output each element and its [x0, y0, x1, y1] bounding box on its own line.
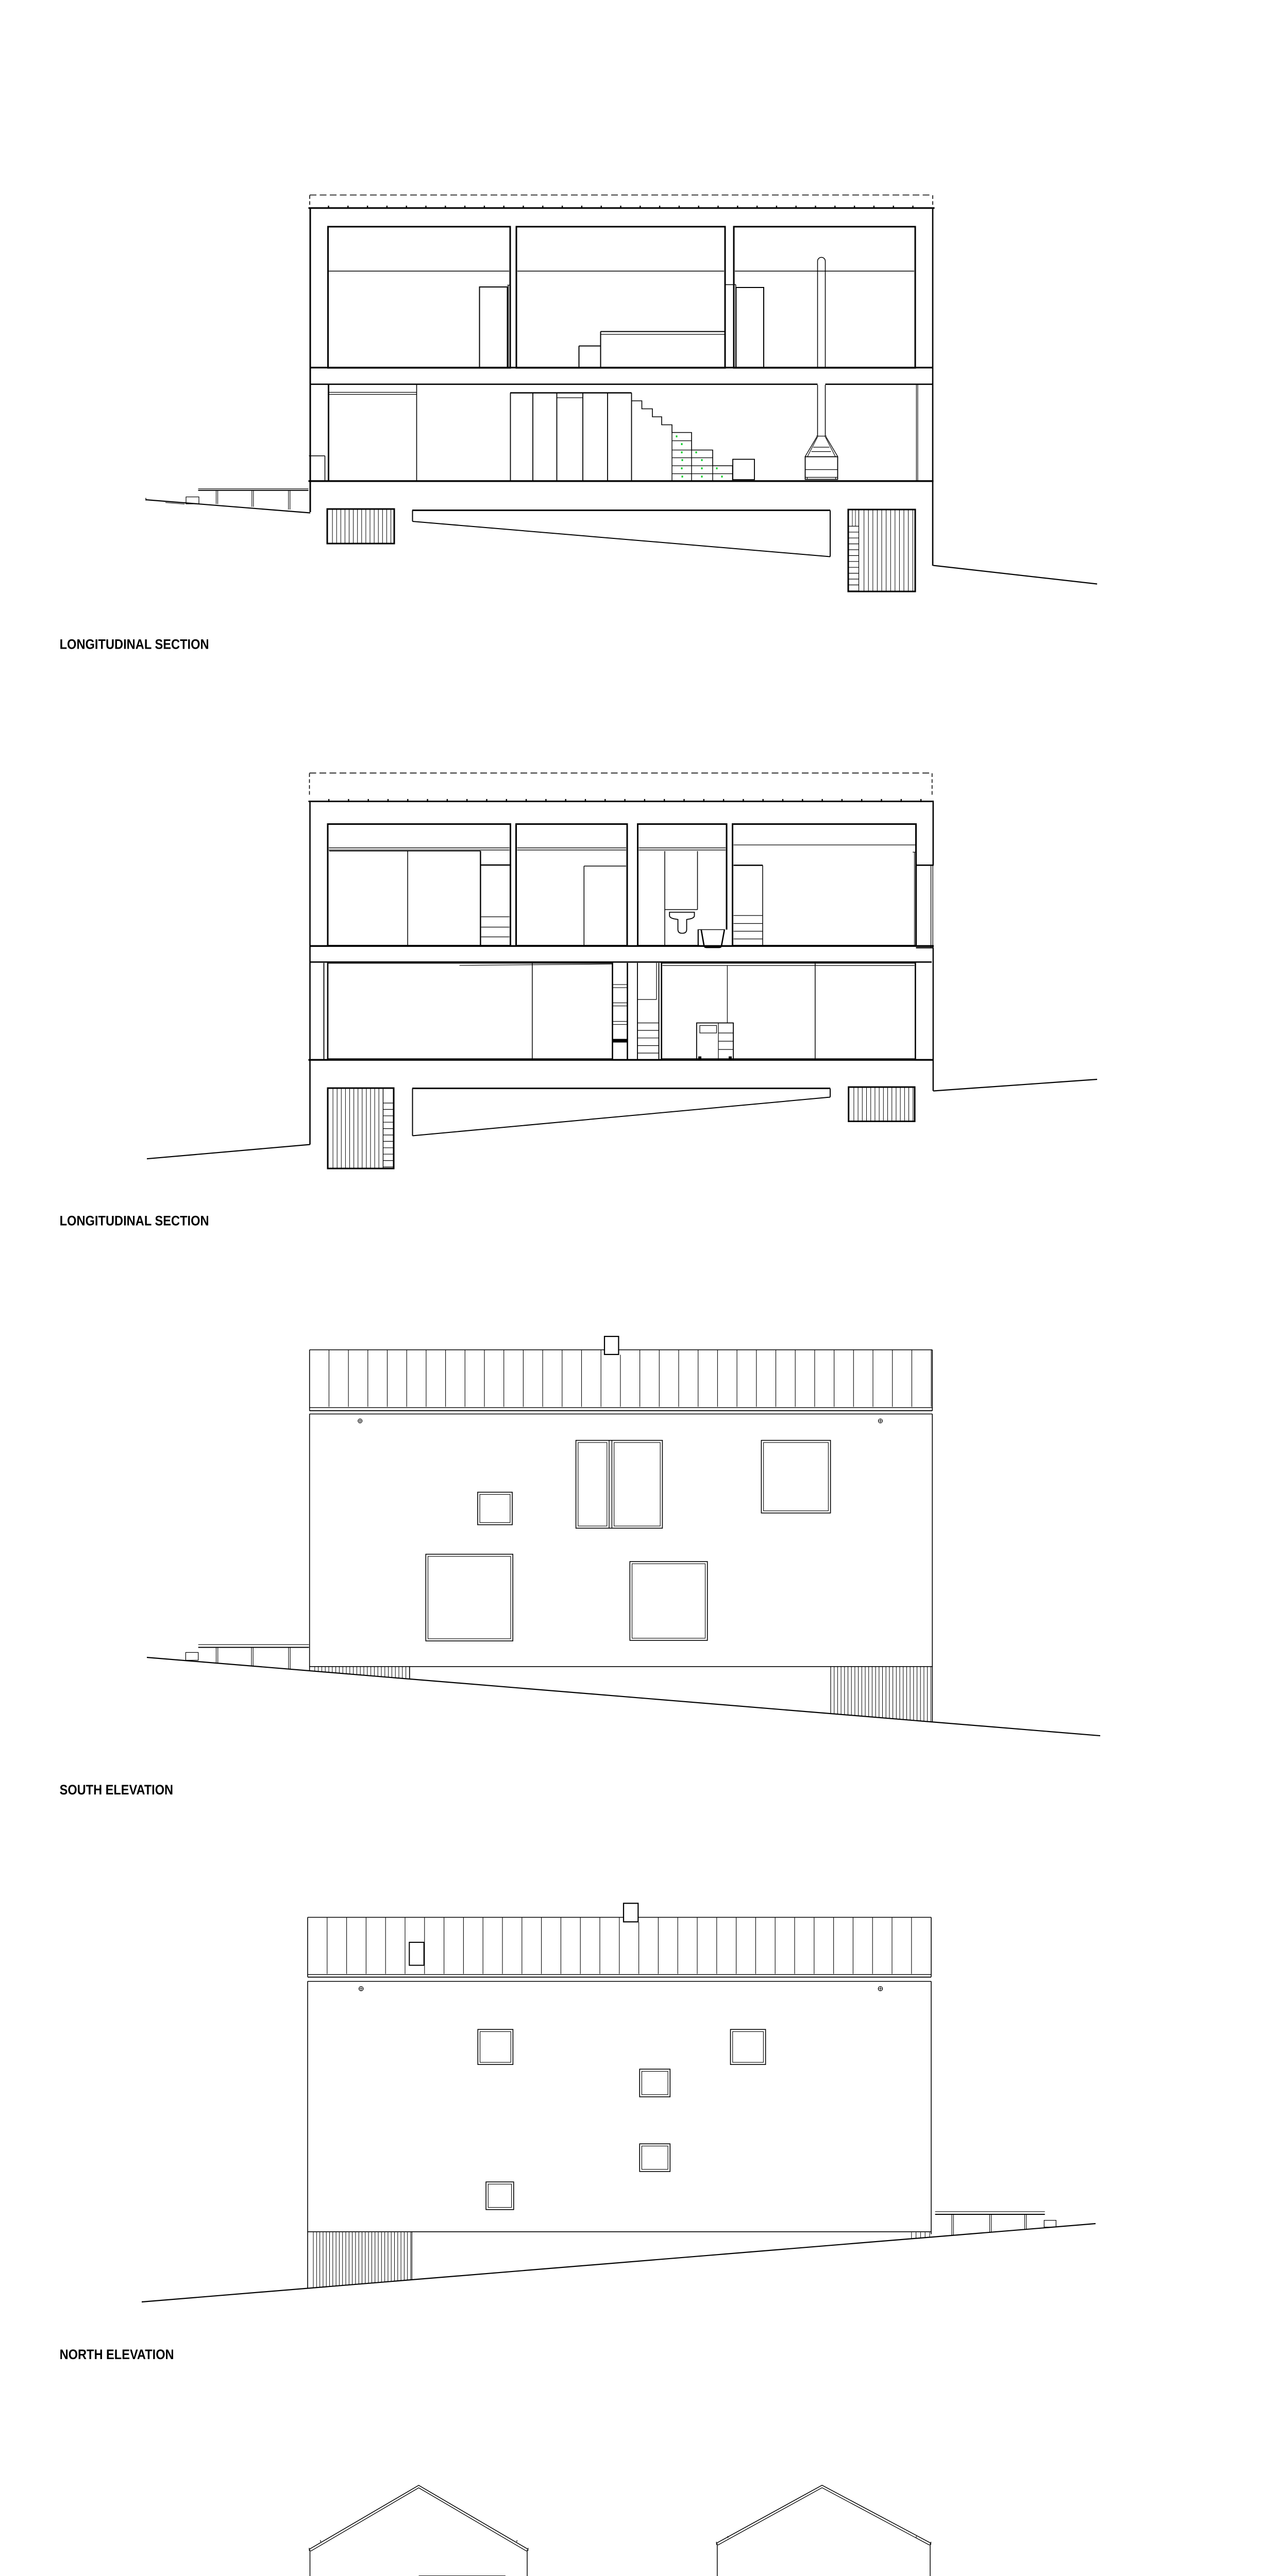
svg-text:LONGITUDINAL SECTION: LONGITUDINAL SECTION: [60, 636, 209, 652]
svg-text:LONGITUDINAL SECTION: LONGITUDINAL SECTION: [60, 1213, 209, 1228]
svg-text:SOUTH ELEVATION: SOUTH ELEVATION: [60, 1782, 174, 1798]
svg-text:NORTH ELEVATION: NORTH ELEVATION: [60, 2347, 174, 2362]
